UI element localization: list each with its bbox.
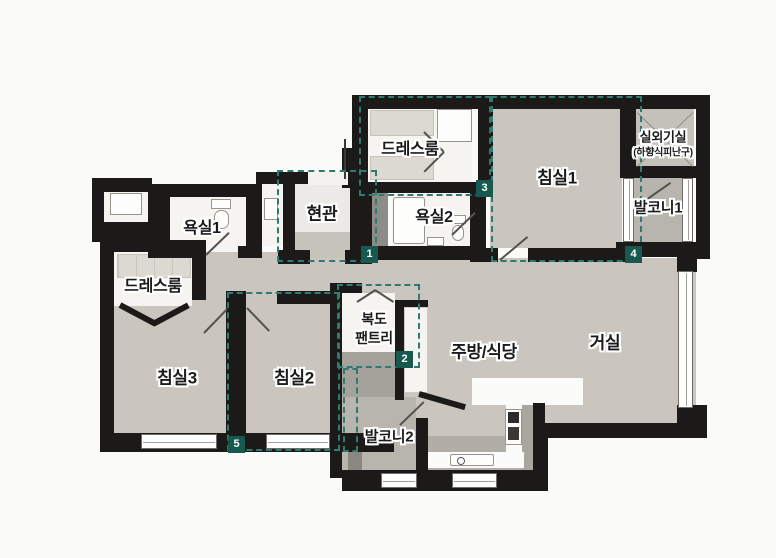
label-living: 거실: [590, 329, 621, 354]
wall: [100, 240, 114, 452]
wall: [368, 246, 472, 260]
wall: [696, 95, 710, 259]
window: [381, 473, 417, 488]
sink-icon: [110, 193, 142, 215]
label-dressroom-left: 드레스룸: [124, 272, 182, 296]
marker-1[interactable]: 1: [361, 246, 378, 263]
label-pantry: 팬트리: [355, 328, 393, 348]
marker-5[interactable]: 5: [228, 436, 245, 453]
wall: [677, 255, 697, 272]
marker-2[interactable]: 2: [396, 351, 413, 368]
floor-plan: 1 2 3 4 5 드레스룸 침실1 실외기실 (하향식피난구) 발코니1 욕실…: [0, 0, 776, 558]
wall: [677, 405, 707, 438]
wall: [540, 423, 700, 438]
label-bedroom2: 침실2: [274, 364, 314, 389]
sink-icon: [264, 198, 278, 220]
wall: [342, 470, 548, 491]
label-entry: 현관: [307, 200, 338, 225]
wall: [238, 246, 262, 258]
label-balcony1: 발코니1: [634, 197, 683, 218]
stove-icon: [508, 427, 519, 440]
label-corridor: 복도: [361, 309, 386, 329]
window: [682, 178, 693, 242]
window: [141, 434, 217, 449]
wall: [92, 222, 150, 242]
label-bedroom1: 침실1: [537, 164, 577, 189]
stove-icon: [508, 412, 519, 423]
marker-4[interactable]: 4: [625, 246, 642, 263]
toilet-icon: [211, 199, 231, 209]
label-bedroom3: 침실3: [157, 364, 197, 389]
label-balcony2: 발코니2: [365, 426, 414, 447]
sink-icon: [427, 237, 444, 246]
label-bath2: 욕실2: [415, 203, 452, 227]
wall: [148, 246, 206, 258]
window: [452, 473, 497, 488]
kitchen-island: [472, 378, 583, 405]
wall: [246, 184, 262, 252]
wall: [533, 438, 548, 471]
wall: [416, 418, 428, 478]
label-outdoor-unit-sub: (하향식피난구): [633, 144, 692, 159]
label-bath1: 욕실1: [183, 214, 220, 238]
marker-3[interactable]: 3: [476, 180, 493, 197]
label-kitchen: 주방/식당: [451, 338, 517, 363]
zone-2-corridor-outline: [343, 368, 358, 452]
window: [678, 271, 693, 408]
kitchen-sink-icon: [457, 457, 465, 465]
wall: [470, 193, 486, 251]
label-dressroom-top: 드레스룸: [381, 135, 439, 159]
